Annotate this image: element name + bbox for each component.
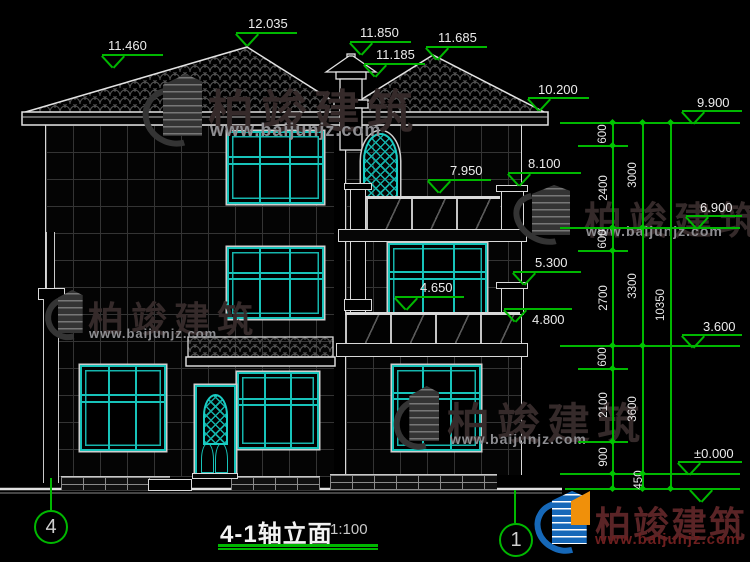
entrance-door: [195, 385, 236, 477]
watermark-url: www.baijunjz.com: [210, 120, 381, 141]
dim-label: 3600: [627, 396, 639, 422]
downpipe-upper: [46, 232, 55, 288]
axis-number: 4: [45, 516, 56, 539]
elevation-label: 11.460: [108, 38, 147, 53]
door-leaf: [201, 443, 214, 473]
entrance-canopy-fascia: [186, 357, 335, 366]
window-1f-mid: [237, 372, 319, 449]
dim-label: 900: [598, 447, 610, 466]
dim-label: 600: [597, 124, 609, 143]
dim-label: 2100: [598, 392, 610, 418]
entrance-step: [148, 479, 192, 491]
axis-bubble-4: 4: [34, 510, 68, 544]
balcony-slab-3f: [338, 229, 527, 242]
axis-bubble-1: 1: [499, 523, 533, 557]
elevation-label: ±0.000: [694, 446, 734, 461]
plinth-brick: [330, 474, 497, 490]
title-underline: [218, 544, 378, 547]
elevation-label: 12.035: [248, 16, 288, 31]
dim-label: 600: [597, 229, 609, 248]
dim-label-total: 10350: [655, 289, 667, 321]
axis-line-1: [514, 490, 516, 523]
balcony-slab-2f: [336, 343, 528, 357]
window-mullion: [259, 133, 261, 202]
elevation-label: 11.685: [438, 30, 477, 45]
drawing-scale: 1:100: [330, 521, 368, 538]
axis-number: 1: [510, 529, 521, 552]
balcony-post-3f-left: [350, 189, 366, 302]
dim-label: 3000: [627, 162, 639, 188]
level-line: [560, 122, 740, 124]
dim-label: 2700: [598, 285, 610, 311]
elevation-label: 11.850: [360, 25, 399, 40]
elevation-label: 5.300: [535, 255, 568, 270]
elevation-triangle: [102, 55, 124, 67]
elevation-label: 10.200: [538, 82, 578, 97]
dimension-chain: [612, 122, 614, 488]
door-threshold: [192, 473, 238, 479]
window-transom: [229, 156, 322, 158]
watermark-logo: [142, 74, 206, 146]
watermark-logo: [45, 290, 85, 340]
plinth-brick: [231, 476, 320, 490]
ground-level-triangle: [690, 489, 712, 501]
dim-label: 2400: [598, 175, 610, 201]
door-arch-lattice: [203, 394, 228, 445]
window-1f-far-left: [80, 365, 166, 451]
dim-label: 3300: [627, 273, 639, 299]
elevation-label: 4.650: [420, 280, 453, 295]
cad-elevation-drawing: 11.460 12.035 11.850 11.185 11.685 10.20…: [0, 0, 750, 562]
watermark-logo: [512, 185, 574, 243]
door-leaf: [215, 443, 228, 473]
elevation-label: 3.600: [703, 319, 736, 334]
window-mullion: [289, 133, 291, 202]
elevation-label: 6.900: [700, 200, 733, 215]
brand-logo: [534, 491, 590, 553]
window-transom: [229, 163, 322, 165]
elevation-label: 8.100: [528, 156, 561, 171]
brand-url: www.baijunjz.com: [595, 531, 740, 548]
watermark-url: www.baijunjz.com: [89, 326, 217, 341]
elevation-label: 11.185: [376, 47, 415, 62]
elevation-label: 9.900: [697, 95, 730, 110]
dim-label: 600: [597, 347, 609, 366]
elevation-label: 7.950: [450, 163, 483, 178]
watermark-logo: [394, 386, 442, 450]
elevation-label: 4.800: [532, 312, 565, 327]
axis-line-4: [50, 478, 52, 510]
watermark-url: www.baijunjz.com: [450, 431, 587, 447]
